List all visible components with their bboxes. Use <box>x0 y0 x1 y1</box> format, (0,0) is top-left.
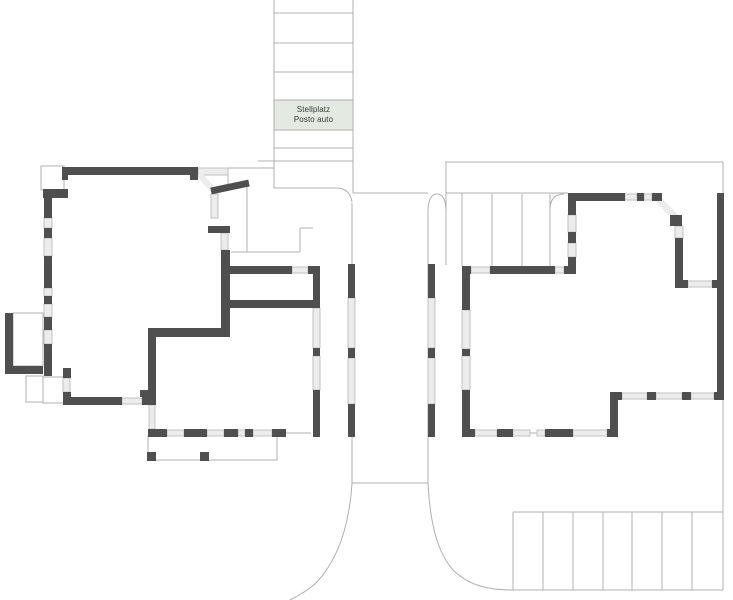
wall-segment <box>428 348 435 358</box>
wall-segment <box>682 392 691 400</box>
window-segment <box>688 281 712 287</box>
wall-segment <box>313 390 320 437</box>
window-segment <box>622 393 647 399</box>
window-segment <box>471 267 490 273</box>
window-segment <box>253 430 272 436</box>
wall-segment <box>44 189 52 218</box>
window-segment <box>475 430 497 436</box>
wall-segment <box>348 348 355 358</box>
wall-segment <box>5 313 13 373</box>
wall-segment <box>714 392 724 400</box>
window-segment <box>207 430 224 436</box>
wall-segment <box>652 193 662 201</box>
wall-segment <box>245 429 253 437</box>
wall-segment <box>670 215 682 226</box>
window-segment <box>238 430 245 436</box>
window-segment <box>348 298 355 348</box>
wall-segment <box>142 397 156 405</box>
wall-segment <box>221 266 292 274</box>
wall-segment <box>5 366 43 374</box>
window-segment <box>625 194 637 200</box>
window-segment <box>513 430 530 436</box>
window-segment <box>568 215 576 232</box>
wall-segment <box>63 368 71 378</box>
wall-segment <box>62 167 68 180</box>
window-segment <box>44 218 52 228</box>
wall-segment <box>462 268 470 310</box>
window-segment <box>656 393 682 399</box>
wall-segment <box>568 232 576 243</box>
wall-segment <box>348 264 355 298</box>
window-segment <box>675 226 683 238</box>
wall-segment <box>675 280 688 288</box>
window-segment <box>555 267 564 273</box>
window-segment <box>211 194 218 218</box>
window-segment <box>537 430 545 436</box>
window-segment <box>573 430 607 436</box>
window-segment <box>221 233 228 250</box>
window-segment <box>167 430 184 436</box>
window-segment <box>44 330 52 344</box>
window-segment <box>462 356 470 390</box>
wall-segment <box>224 429 238 437</box>
floor-plan-drawing <box>0 0 733 600</box>
plan-background <box>0 0 733 600</box>
wall-segment <box>62 167 198 175</box>
window-segment <box>313 308 320 348</box>
window-segment <box>313 356 320 390</box>
window-segment <box>691 393 714 399</box>
wall-segment <box>564 266 576 274</box>
wall-segment <box>63 397 122 405</box>
window-segment <box>44 288 52 296</box>
wall-segment <box>140 390 148 397</box>
wall-segment <box>675 238 683 287</box>
wall-segment <box>190 167 198 180</box>
window-segment <box>44 304 52 317</box>
window-segment <box>348 358 355 404</box>
window-segment <box>63 378 70 392</box>
wall-segment <box>148 328 156 397</box>
wall-segment <box>568 193 625 201</box>
wall-segment <box>462 349 470 356</box>
parking-stall-label-it: Posto auto <box>294 115 333 126</box>
wall-segment <box>148 429 167 437</box>
wall-segment <box>607 429 618 437</box>
terrace-post <box>200 452 209 461</box>
wall-segment <box>313 348 320 356</box>
parking-stall-label-de: Stellplatz <box>297 105 330 116</box>
wall-segment <box>497 429 513 437</box>
window-segment <box>122 398 142 404</box>
wall-segment <box>184 429 207 437</box>
terrace-post <box>147 452 156 461</box>
wall-segment <box>717 193 724 400</box>
wall-segment <box>230 300 320 308</box>
window-segment <box>428 298 435 348</box>
wall-segment <box>637 193 644 201</box>
wall-segment <box>545 429 573 437</box>
window-segment <box>292 267 308 273</box>
window-segment <box>428 358 435 404</box>
wall-segment <box>44 228 52 238</box>
wall-segment <box>44 317 52 330</box>
wall-segment <box>272 429 286 437</box>
site-plan: Stellplatz Posto auto <box>0 0 733 600</box>
parking-stall-label: Stellplatz Posto auto <box>274 100 353 130</box>
wall-segment <box>221 250 230 337</box>
wall-segment <box>428 264 435 298</box>
wall-segment <box>44 256 52 288</box>
wall-segment <box>44 344 52 376</box>
wall-segment <box>647 392 656 400</box>
window-segment <box>149 405 155 429</box>
wall-segment <box>148 328 230 337</box>
wall-segment <box>428 404 435 437</box>
window-segment <box>568 243 576 257</box>
window-segment <box>462 310 470 349</box>
wall-segment <box>490 266 555 274</box>
wall-segment <box>568 193 576 215</box>
window-segment <box>644 194 652 200</box>
wall-segment <box>313 266 320 308</box>
wall-segment <box>44 296 52 304</box>
window-segment <box>44 238 52 256</box>
wall-segment <box>208 226 230 233</box>
wall-segment <box>348 404 355 437</box>
wall-segment <box>462 429 475 437</box>
